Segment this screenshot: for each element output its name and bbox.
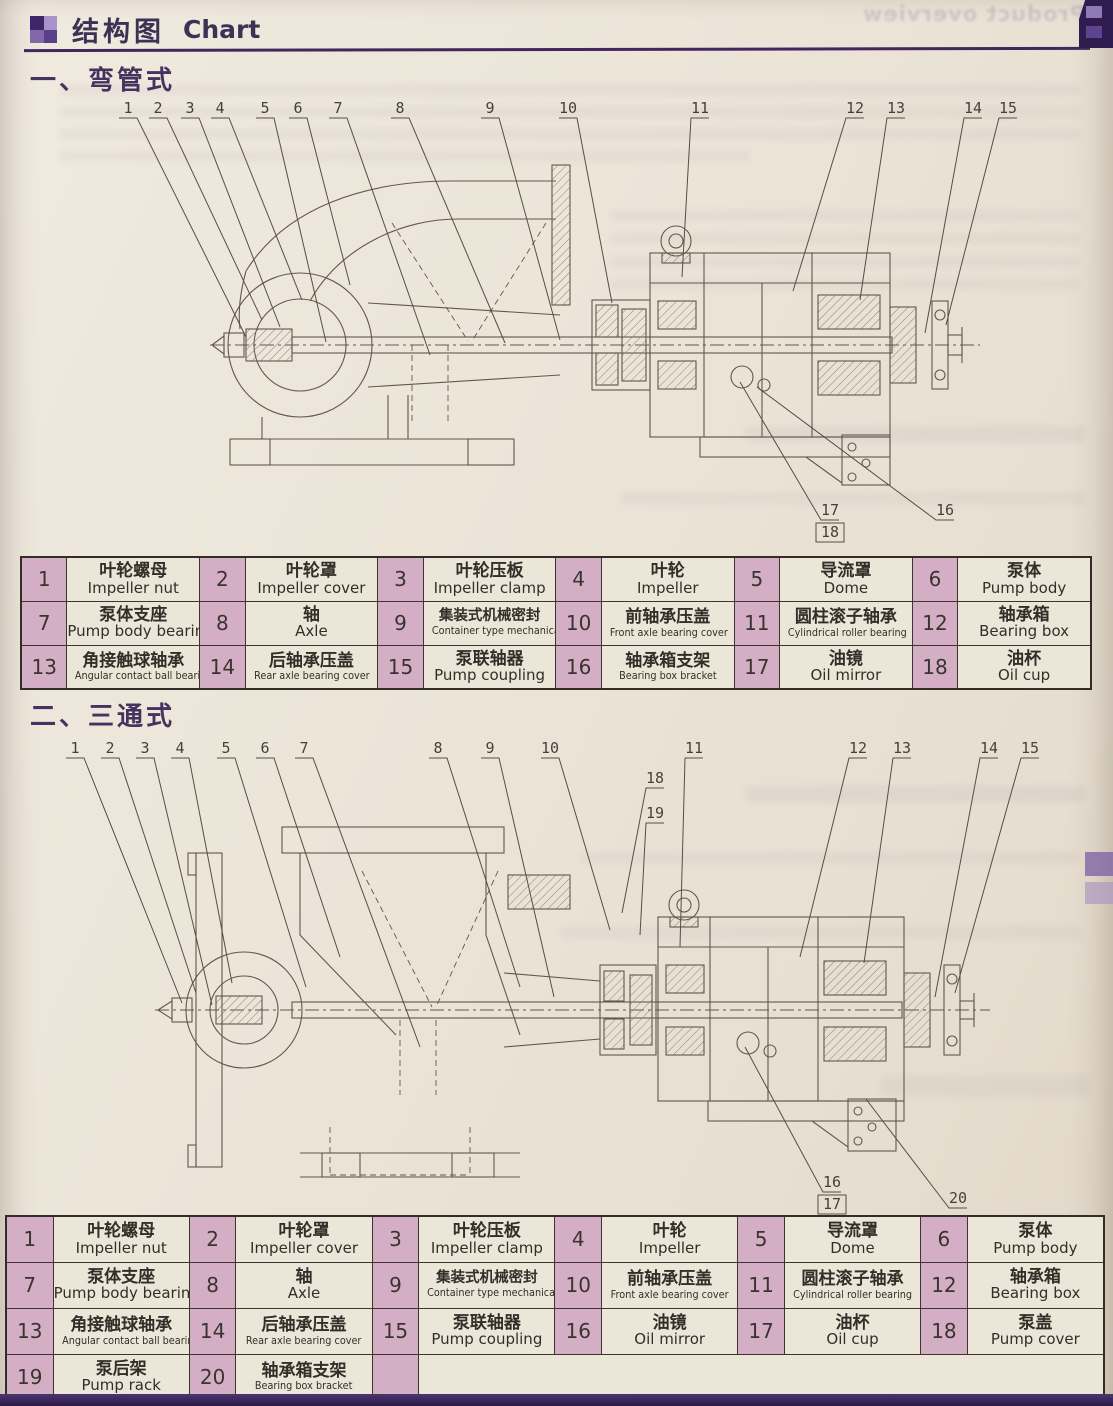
part-number: 10 (555, 1262, 602, 1308)
part-number: 7 (6, 1262, 53, 1308)
part-number: 16 (555, 1308, 602, 1354)
callout-9: 9 (485, 739, 494, 757)
callout-4: 4 (215, 99, 224, 117)
part-number: 8 (200, 601, 245, 645)
callout-leader-15 (946, 118, 1017, 325)
part-name: 叶轮Impeller (602, 1216, 738, 1262)
part-number: 9 (372, 1262, 419, 1308)
part-name: 叶轮螺母Impeller nut (67, 557, 200, 601)
part-name: 叶轮罩Impeller cover (245, 557, 378, 601)
part-name: 油杯Oil cup (784, 1308, 920, 1354)
callout-leader-17 (740, 382, 839, 520)
callout-leader-1 (66, 758, 182, 1003)
callout-8: 8 (395, 99, 404, 117)
callout-leader-2 (149, 118, 262, 320)
callout-5: 5 (221, 739, 230, 757)
part-number: 18 (921, 1308, 968, 1354)
header: 结构图 Chart (30, 10, 260, 49)
part-number: 2 (200, 557, 245, 601)
part-number: 16 (556, 645, 601, 689)
callout-5: 5 (260, 99, 269, 117)
callout-20: 20 (949, 1189, 967, 1207)
callout-10: 10 (541, 739, 559, 757)
callout-leader-16 (757, 387, 954, 520)
callout-16: 16 (823, 1173, 841, 1191)
part-name: 油镜Oil mirror (780, 645, 913, 689)
part-number: 14 (189, 1308, 236, 1354)
part-number: 5 (738, 1216, 785, 1262)
part-number: 3 (378, 557, 423, 601)
parts-row: 7泵体支座Pump body bearing8轴Axle9集装式机械密封Cont… (21, 601, 1091, 645)
part-number: 2 (189, 1216, 236, 1262)
callout-3: 3 (185, 99, 194, 117)
pump-cross-section-drawing (155, 827, 990, 1177)
part-number: 6 (912, 557, 957, 601)
callout-leader-3 (181, 118, 280, 327)
callout-leader-14 (935, 758, 998, 997)
callout-3: 3 (140, 739, 149, 757)
callout-14: 14 (964, 99, 982, 117)
callout-16: 16 (936, 501, 954, 519)
part-number: 11 (738, 1262, 785, 1308)
callout-8: 8 (433, 739, 442, 757)
callout-leader-5 (217, 758, 306, 987)
part-name: 泵联轴器Pump coupling (423, 645, 556, 689)
callout-18: 18 (821, 523, 839, 541)
part-number: 8 (189, 1262, 236, 1308)
callout-2: 2 (153, 99, 162, 117)
callout-12: 12 (846, 99, 864, 117)
parts-table-bend-pipe: 1叶轮螺母Impeller nut2叶轮罩Impeller cover3叶轮压板… (20, 556, 1092, 690)
callout-1: 1 (123, 99, 132, 117)
part-number: 10 (556, 601, 601, 645)
part-name: 油杯Oil cup (958, 645, 1091, 689)
callout-4: 4 (175, 739, 184, 757)
parts-row: 1叶轮螺母Impeller nut2叶轮罩Impeller cover3叶轮压板… (21, 557, 1091, 601)
callout-1: 1 (70, 739, 79, 757)
callout-leader-13 (860, 118, 905, 300)
part-name: 叶轮Impeller (601, 557, 734, 601)
part-number: 7 (21, 601, 67, 645)
callout-17: 17 (823, 1195, 841, 1213)
callout-leader-3 (136, 758, 212, 1005)
callout-15: 15 (999, 99, 1017, 117)
section-heading-tee-type: 二、三通式 (30, 696, 175, 733)
part-name: 角接触球轴承Angular contact ball bearings (67, 645, 200, 689)
callout-leader-6 (256, 758, 340, 957)
part-number: 6 (921, 1216, 968, 1262)
part-number: 4 (556, 557, 601, 601)
callout-leader-4 (211, 118, 302, 300)
page-corner-square (1086, 26, 1102, 38)
part-number: 15 (378, 645, 423, 689)
part-name: 前轴承压盖Front axle bearing cover (602, 1262, 738, 1308)
part-number: 3 (372, 1216, 419, 1262)
callout-18: 18 (646, 769, 664, 787)
callout-19: 19 (646, 804, 664, 822)
callout-14: 14 (980, 739, 998, 757)
callout-leader-7 (295, 758, 420, 1047)
callout-7: 7 (299, 739, 308, 757)
part-number: 9 (378, 601, 423, 645)
part-name: 圆柱滚子轴承Cylindrical roller bearing (780, 601, 913, 645)
callout-11: 11 (691, 99, 709, 117)
callout-leader-8 (429, 758, 520, 987)
callout-17: 17 (821, 501, 839, 519)
part-number: 14 (200, 645, 245, 689)
callout-leader-6 (289, 118, 350, 285)
part-name: 轴承箱Bearing box (967, 1262, 1104, 1308)
callout-15: 15 (1021, 739, 1039, 757)
part-name: 油镜Oil mirror (602, 1308, 738, 1354)
part-name: 泵体Pump body (958, 557, 1091, 601)
part-name: 后轴承压盖Rear axle bearing cover (245, 645, 378, 689)
part-name: 后轴承压盖Rear axle bearing cover (236, 1308, 372, 1354)
part-name: 轴Axle (245, 601, 378, 645)
part-number: 18 (912, 645, 957, 689)
part-name: 前轴承压盖Front axle bearing cover (601, 601, 734, 645)
callout-leader-9 (481, 118, 560, 340)
part-name: 轴Axle (236, 1262, 372, 1308)
parts-row: 1叶轮螺母Impeller nut2叶轮罩Impeller cover3叶轮压板… (6, 1216, 1104, 1262)
part-name: 叶轮螺母Impeller nut (53, 1216, 189, 1262)
callout-13: 13 (893, 739, 911, 757)
part-name: 泵体支座Pump body bearing (67, 601, 200, 645)
part-name: 轴承箱Bearing box (958, 601, 1091, 645)
part-name: 叶轮压板Impeller clamp (423, 557, 556, 601)
page-title-en: Chart (183, 15, 260, 44)
part-name: 角接触球轴承Angular contact ball bearings (53, 1308, 189, 1354)
part-number: 15 (372, 1308, 419, 1354)
callout-leader-12 (793, 118, 864, 291)
part-name: 导流罩Dome (784, 1216, 920, 1262)
parts-table-tee-type: 1叶轮螺母Impeller nut2叶轮罩Impeller cover3叶轮压板… (5, 1215, 1105, 1401)
part-name: 叶轮罩Impeller cover (236, 1216, 372, 1262)
callout-leader-15 (955, 758, 1039, 993)
callout-6: 6 (260, 739, 269, 757)
manual-page: Product overview 结构图 Chart 一、弯管式 二、三通式 (0, 0, 1113, 1406)
bleedthrough-text: Product overview (862, 2, 1085, 26)
section-marker-icon (30, 16, 57, 43)
part-number: 4 (555, 1216, 602, 1262)
part-name: 泵联轴器Pump coupling (419, 1308, 555, 1354)
part-name: 叶轮压板Impeller clamp (419, 1216, 555, 1262)
parts-row: 7泵体支座Pump body bearing8轴Axle9集装式机械密封Cont… (6, 1262, 1104, 1308)
part-name: 轴承箱支架Bearing box bracket (601, 645, 734, 689)
callout-2: 2 (105, 739, 114, 757)
part-number: 11 (734, 601, 779, 645)
part-name: 圆柱滚子轴承Cylindrical roller bearing (784, 1262, 920, 1308)
callout-6: 6 (293, 99, 302, 117)
parts-row: 13角接触球轴承Angular contact ball bearings14后… (6, 1308, 1104, 1354)
callout-10: 10 (559, 99, 577, 117)
part-name: 泵盖Pump cover (967, 1308, 1104, 1354)
callout-leader-16 (745, 1047, 841, 1192)
section-heading-bend-pipe: 一、弯管式 (30, 60, 175, 97)
part-number: 1 (6, 1216, 53, 1262)
page-title-zh: 结构图 (72, 10, 165, 49)
part-number: 12 (912, 601, 957, 645)
part-number: 12 (921, 1262, 968, 1308)
part-number: 5 (734, 557, 779, 601)
parts-row: 13角接触球轴承Angular contact ball bearings14后… (21, 645, 1091, 689)
callout-7: 7 (333, 99, 342, 117)
page-bottom-edge (0, 1394, 1113, 1406)
callout-leader-12 (800, 758, 867, 957)
callout-9: 9 (485, 99, 494, 117)
part-name: 泵体支座Pump body bearing (53, 1262, 189, 1308)
callout-12: 12 (849, 739, 867, 757)
bend-pipe-diagram: 123456789101112131415171816 (0, 95, 1113, 555)
part-number: 17 (734, 645, 779, 689)
part-number: 17 (738, 1308, 785, 1354)
callout-13: 13 (887, 99, 905, 117)
tee-type-diagram: 1234567891018191112131415161720 (0, 735, 1113, 1215)
part-number: 13 (6, 1308, 53, 1354)
page-corner-square (1086, 6, 1102, 18)
part-name: 集装式机械密封Container type mechanical seal (423, 601, 556, 645)
part-number: 13 (21, 645, 67, 689)
part-name: 集装式机械密封Container type mechanical seal (419, 1262, 555, 1308)
callout-leader-19 (640, 823, 664, 935)
part-name: 导流罩Dome (780, 557, 913, 601)
part-number: 1 (21, 557, 67, 601)
callout-11: 11 (685, 739, 703, 757)
part-name: 泵体Pump body (967, 1216, 1104, 1262)
